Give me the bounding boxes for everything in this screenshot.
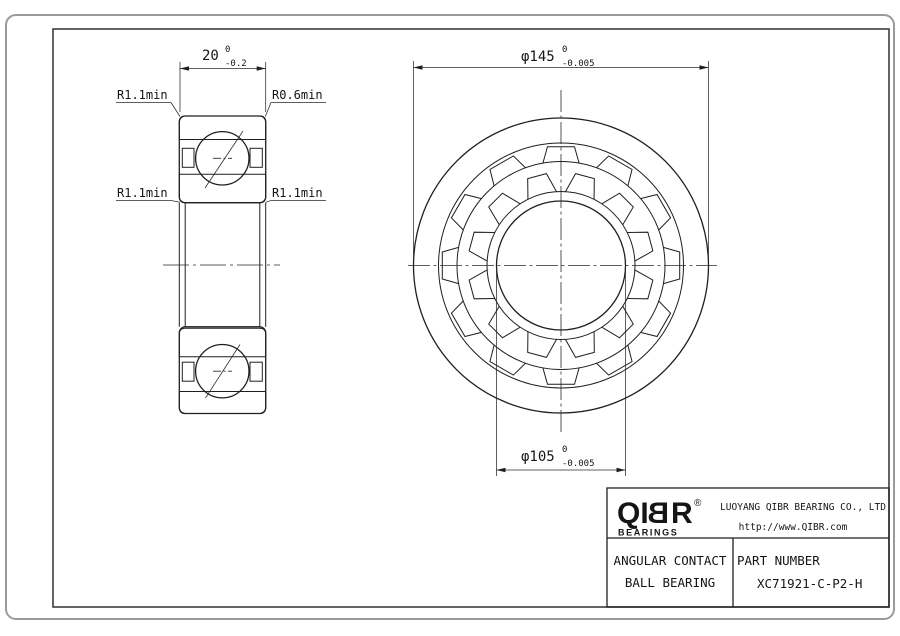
cage-right-bottom-section: [250, 362, 262, 381]
outer-ring-bottom-section: [179, 392, 265, 414]
width-arrow-left: [180, 66, 189, 71]
title-block: QI B R ® BEARINGS LUOYANG QIBR BEARING C…: [607, 488, 889, 607]
product-type-line1: ANGULAR CONTACT: [614, 553, 727, 568]
front-view: φ145 0 -0.005 φ105 0 -0.005: [408, 45, 717, 476]
part-number-value: XC71921-C-P2-H: [757, 576, 862, 591]
section-outline-bottom: [179, 327, 265, 414]
logo-text-b-mirrored: B: [647, 497, 669, 530]
logo-text-qi: QI: [617, 497, 649, 530]
bore-arrow-left: [497, 468, 506, 473]
ball-bottom-section: [196, 345, 249, 398]
od-dim-tol-bottom: -0.005: [562, 59, 595, 69]
cage-right-top-section: [250, 148, 262, 167]
company-name: LUOYANG QIBR BEARING CO., LTD: [720, 502, 886, 513]
width-arrow-right: [257, 66, 266, 71]
section-view: 20 0 -0.2 R1.1min R0.6min R1.1min R1.1mi…: [116, 45, 326, 414]
inner-ring-top-section: [179, 174, 265, 202]
brand-logo: QI B R ® BEARINGS: [617, 497, 702, 538]
leader-top-left: [171, 103, 180, 117]
section-outline-top: [179, 116, 265, 203]
product-type-line2: BALL BEARING: [625, 575, 715, 590]
od-dim-value: φ145: [521, 49, 555, 65]
radius-label-bottom-right: R1.1min: [272, 186, 323, 200]
outer-ring-top-section: [179, 116, 265, 140]
leader-top-right: [265, 103, 271, 117]
registered-mark-icon: ®: [694, 498, 702, 509]
bore-arrow-right: [617, 468, 626, 473]
radius-label-top-left: R1.1min: [117, 88, 168, 102]
inner-ring-bottom-section: [179, 328, 265, 356]
radius-label-top-right: R0.6min: [272, 88, 323, 102]
width-dim-tol-top: 0: [225, 45, 230, 55]
company-website: http://www.QIBR.com: [739, 522, 848, 533]
bore-dim-value: φ105: [521, 449, 555, 465]
leader-bottom-left: [171, 201, 180, 203]
width-dim-tol-bottom: -0.2: [225, 59, 247, 69]
bearing-drawing-svg: 20 0 -0.2 R1.1min R0.6min R1.1min R1.1mi…: [0, 0, 900, 636]
logo-text-r: R: [671, 497, 693, 530]
width-dim-value: 20: [202, 48, 219, 64]
contact-angle-line-bottom: [206, 345, 241, 399]
cage-left-bottom-section: [182, 362, 194, 381]
bore-dim-tol-bottom: -0.005: [562, 459, 595, 469]
logo-subtext: BEARINGS: [618, 528, 678, 538]
od-arrow-left: [414, 65, 423, 70]
drawing-page: 20 0 -0.2 R1.1min R0.6min R1.1min R1.1mi…: [0, 0, 900, 636]
part-number-label: PART NUMBER: [737, 553, 820, 568]
leader-bottom-right: [266, 201, 271, 203]
bore-dim-tol-top: 0: [562, 445, 567, 455]
od-dim-tol-top: 0: [562, 45, 567, 55]
cage-left-top-section: [182, 148, 194, 167]
radius-label-bottom-left: R1.1min: [117, 186, 168, 200]
od-arrow-right: [700, 65, 709, 70]
